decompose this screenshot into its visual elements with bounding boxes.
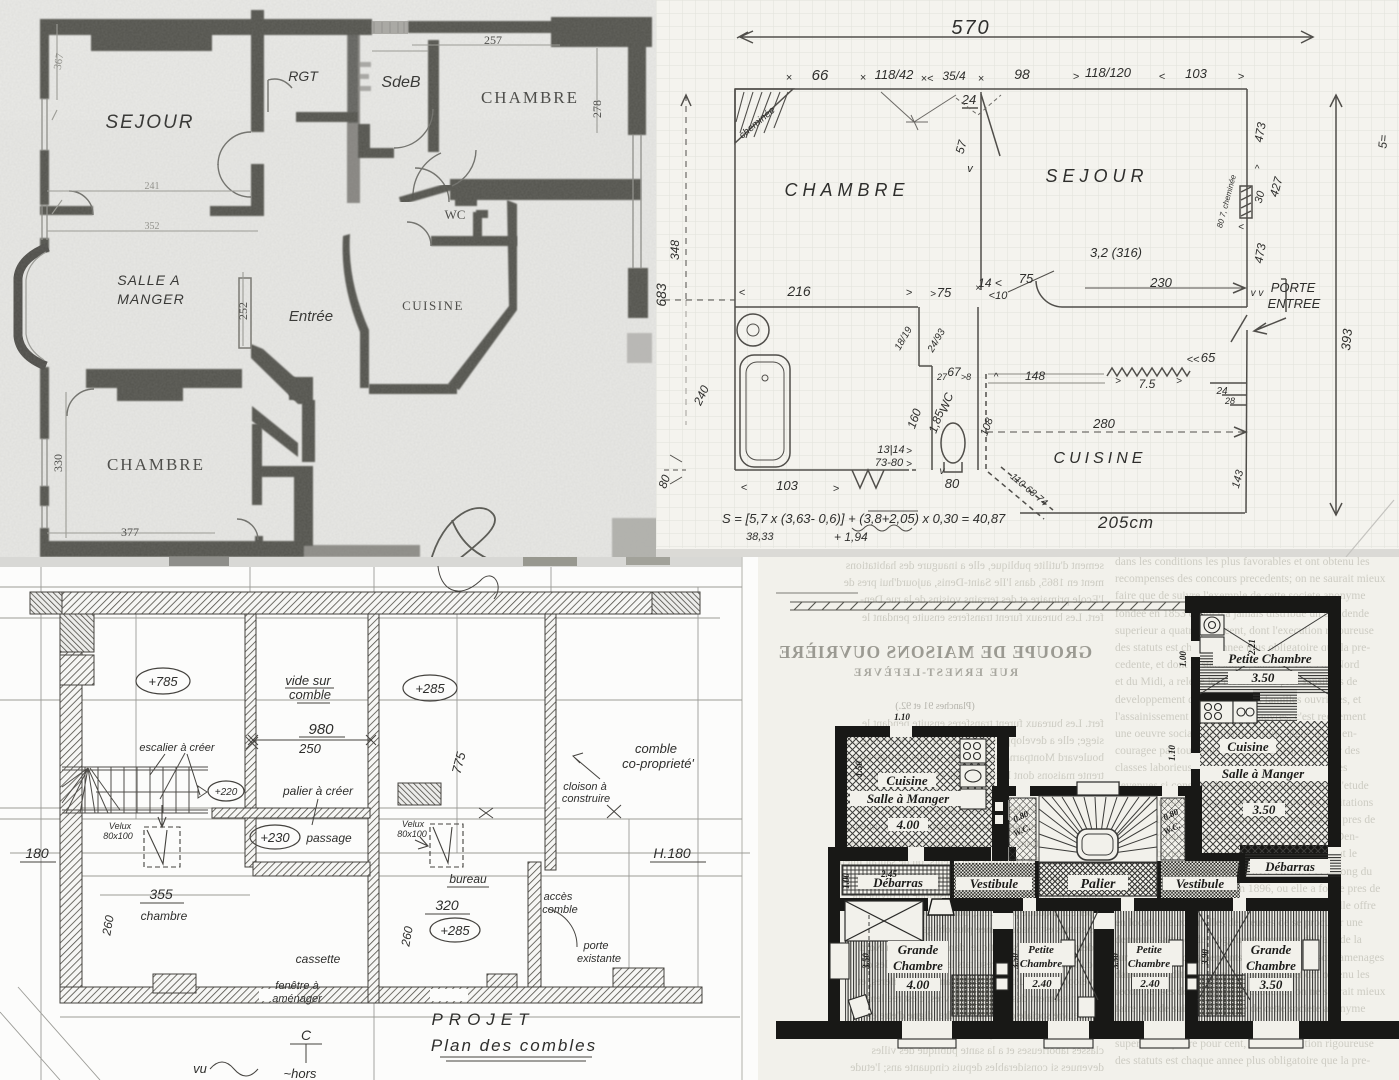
svg-text:passage: passage: [305, 831, 352, 845]
svg-text:205cm: 205cm: [1097, 513, 1154, 532]
svg-text:>: >: [1073, 71, 1080, 83]
svg-text:98: 98: [1014, 66, 1030, 82]
svg-text:80x100: 80x100: [103, 831, 133, 841]
svg-text:>: >: [1176, 376, 1182, 387]
svg-text:<: <: [741, 482, 748, 494]
svg-text:chambre: chambre: [141, 909, 188, 923]
svg-text:980: 980: [308, 721, 334, 738]
svg-text:>: >: [833, 483, 840, 495]
svg-text:3.90: 3.90: [1200, 949, 1210, 966]
svg-text:118/120: 118/120: [1085, 65, 1132, 80]
svg-text:fert. Les bureaux furent trans: fert. Les bureaux furent transferes ensu…: [862, 612, 1104, 624]
svg-text:4.00: 4.00: [906, 977, 930, 992]
svg-text:13|14: 13|14: [877, 444, 904, 456]
svg-text:280: 280: [1092, 416, 1115, 431]
svg-text:fenêtre à: fenêtre à: [275, 980, 318, 992]
svg-text:Salle à Manger: Salle à Manger: [1222, 766, 1305, 781]
svg-text:×: ×: [786, 72, 792, 84]
svg-text:27: 27: [936, 372, 948, 382]
svg-text:66: 66: [812, 67, 829, 84]
svg-text:×<: ×<: [921, 73, 934, 85]
svg-text:148: 148: [1025, 369, 1045, 383]
svg-text:2.45: 2.45: [880, 869, 897, 879]
svg-text:devenues si considerables depu: devenues si considerables depuis cinquan…: [850, 1062, 1104, 1074]
svg-text:^: ^: [1255, 164, 1260, 175]
svg-text:vide sur: vide sur: [285, 673, 331, 688]
svg-text:3.50: 3.50: [1010, 953, 1020, 970]
svg-text:Cuisine: Cuisine: [886, 773, 927, 788]
svg-text:CHAMBRE: CHAMBRE: [784, 180, 909, 200]
svg-text:v v: v v: [1251, 288, 1265, 299]
svg-text:103: 103: [776, 478, 798, 493]
svg-text:38,33: 38,33: [746, 531, 774, 543]
svg-text:3,2 (316): 3,2 (316): [1090, 245, 1142, 260]
svg-text:<<: <<: [1187, 354, 1200, 366]
svg-text:RUE ERNEST-LEFÈVRE: RUE ERNEST-LEFÈVRE: [852, 665, 1018, 679]
svg-text:+ 1,94: + 1,94: [834, 530, 868, 544]
svg-text:accès: accès: [544, 891, 573, 903]
svg-text:118/42: 118/42: [875, 67, 915, 82]
svg-text:dans les conditions les plus f: dans les conditions les plus favorables …: [1115, 557, 1370, 568]
svg-text:1.00: 1.00: [1178, 651, 1188, 667]
svg-text:216: 216: [786, 283, 811, 299]
svg-text:65: 65: [1201, 350, 1216, 365]
svg-text:ENTREE: ENTREE: [1268, 296, 1321, 311]
svg-text:<: <: [739, 287, 746, 299]
svg-text:570: 570: [951, 17, 990, 39]
svg-text:Salle à Manger: Salle à Manger: [867, 791, 950, 806]
svg-text:75: 75: [937, 285, 952, 300]
svg-text:PORTE: PORTE: [1271, 280, 1316, 295]
svg-text:Petite: Petite: [1136, 944, 1162, 956]
svg-text:Cuisine: Cuisine: [1227, 739, 1268, 754]
svg-text:comble: comble: [635, 741, 677, 756]
svg-text:393: 393: [1338, 327, 1355, 351]
svg-text:^: ^: [994, 372, 999, 383]
svg-text:co-proprieté': co-proprieté': [622, 756, 694, 771]
svg-text:SEJOUR: SEJOUR: [1045, 166, 1148, 186]
svg-text:+285: +285: [415, 681, 445, 696]
svg-text:H.180: H.180: [653, 845, 691, 861]
svg-text:683: 683: [656, 283, 669, 307]
svg-text:Chambre: Chambre: [1020, 958, 1062, 970]
svg-text:Vestibule: Vestibule: [1176, 876, 1225, 891]
svg-text:vu: vu: [193, 1061, 207, 1076]
svg-text:GROUPE DE MAISONS OUVRIÈRE: GROUPE DE MAISONS OUVRIÈRE: [778, 642, 1092, 662]
svg-text:320: 320: [435, 897, 459, 913]
svg-text:4.00: 4.00: [896, 817, 920, 832]
svg-text:>: >: [930, 289, 936, 300]
svg-text:palier à créer: palier à créer: [282, 784, 354, 798]
svg-text:75: 75: [1019, 271, 1034, 286]
svg-text:>: >: [906, 446, 912, 457]
svg-text:Débarras: Débarras: [872, 875, 923, 890]
svg-text:Velux: Velux: [109, 821, 132, 831]
svg-text:Grande: Grande: [1251, 942, 1292, 957]
svg-text:Plan des combles: Plan des combles: [431, 1036, 597, 1055]
svg-text:recompenses des concours prece: recompenses des concours precedents; on …: [1115, 573, 1386, 585]
svg-text:103: 103: [1185, 66, 1207, 81]
svg-text:Palier: Palier: [1081, 877, 1117, 892]
svg-text:5=: 5=: [1375, 134, 1390, 149]
svg-text:×: ×: [978, 73, 984, 85]
svg-text:2.40: 2.40: [1031, 978, 1052, 990]
svg-text:230: 230: [1149, 275, 1172, 290]
svg-text:construire: construire: [562, 793, 610, 805]
svg-text:73-80: 73-80: [875, 457, 904, 469]
svg-text:2.21: 2.21: [1247, 639, 1257, 656]
svg-text:28: 28: [1224, 396, 1235, 406]
svg-text:+220: +220: [215, 787, 238, 798]
svg-text:Velux: Velux: [402, 819, 425, 829]
svg-text:80x100: 80x100: [397, 829, 427, 839]
svg-text:Débarras: Débarras: [1264, 859, 1315, 874]
svg-text:348: 348: [668, 240, 682, 260]
svg-text:cassette: cassette: [296, 952, 341, 966]
svg-text:aménager: aménager: [272, 993, 323, 1005]
svg-text:CUISINE: CUISINE: [1054, 450, 1147, 467]
svg-text:3.50: 3.50: [1110, 953, 1120, 970]
svg-text:<10: <10: [989, 290, 1009, 302]
svg-text:<: <: [1238, 222, 1244, 233]
svg-text:~hors: ~hors: [284, 1066, 317, 1080]
svg-text:1.10: 1.10: [1167, 745, 1177, 761]
svg-text:+285: +285: [440, 923, 470, 938]
svg-text:comble: comble: [289, 687, 331, 702]
svg-text:bureau: bureau: [449, 872, 487, 886]
svg-text:porte: porte: [582, 940, 608, 952]
svg-text:Chambre: Chambre: [893, 958, 943, 973]
svg-text:PROJET: PROJET: [431, 1010, 534, 1029]
svg-text:des statuts est chaque annee p: des statuts est chaque annee plus obliga…: [1115, 1055, 1370, 1067]
svg-text:Grande: Grande: [898, 942, 939, 957]
svg-text:>: >: [906, 459, 912, 470]
svg-text:Chambre: Chambre: [1246, 958, 1296, 973]
svg-text:Chambre: Chambre: [1128, 958, 1170, 970]
svg-text:×: ×: [860, 72, 866, 84]
svg-text:14 <: 14 <: [978, 276, 1002, 290]
svg-text:(Planches 91 et 92.): (Planches 91 et 92.): [895, 701, 974, 712]
svg-text:180: 180: [25, 845, 49, 861]
svg-text:>8: >8: [961, 372, 971, 382]
svg-text:24: 24: [961, 92, 976, 107]
svg-text:cloison à: cloison à: [563, 781, 606, 793]
svg-text:>: >: [906, 287, 913, 299]
svg-text:35/4: 35/4: [942, 69, 966, 83]
svg-text:1.00: 1.00: [841, 873, 851, 889]
svg-text:2.40: 2.40: [1139, 978, 1160, 990]
svg-text:+785: +785: [148, 674, 178, 689]
svg-text:1.50: 1.50: [854, 761, 864, 777]
svg-text:355: 355: [149, 886, 173, 902]
svg-text:existante: existante: [577, 953, 621, 965]
svg-text:1.10: 1.10: [894, 712, 910, 722]
svg-text:>: >: [1115, 376, 1121, 387]
svg-text:C: C: [301, 1027, 312, 1043]
svg-text:×: ×: [975, 283, 981, 294]
svg-text:S = [5,7 x (3,63- 0,6)] + (3,8: S = [5,7 x (3,63- 0,6)] + (3,8+2,05) x 0…: [722, 511, 1006, 526]
svg-text:escalier à créer: escalier à créer: [139, 742, 216, 754]
svg-text:Petite Chambre: Petite Chambre: [1228, 651, 1312, 666]
svg-text:Petite: Petite: [1028, 944, 1054, 956]
svg-text:<: <: [1159, 71, 1166, 83]
svg-text:Vestibule: Vestibule: [970, 876, 1019, 891]
svg-text:67: 67: [947, 365, 962, 379]
svg-text:80: 80: [945, 476, 960, 491]
svg-text:>: >: [1238, 71, 1245, 83]
svg-text:3.50: 3.50: [861, 953, 871, 970]
svg-text:7.5: 7.5: [1139, 377, 1156, 391]
svg-text:+230: +230: [260, 830, 290, 845]
svg-text:3.50: 3.50: [1252, 802, 1276, 817]
svg-text:3.50: 3.50: [1259, 977, 1283, 992]
svg-text:ment en 1865, dans l'Ile Saint: ment en 1865, dans l'Ile Saint-Denis, au…: [844, 577, 1104, 589]
svg-text:sement d'utilite publique, ell: sement d'utilite publique, elle a inaugu…: [845, 560, 1104, 572]
svg-text:3.50: 3.50: [1251, 670, 1275, 685]
svg-text:250: 250: [298, 741, 321, 756]
